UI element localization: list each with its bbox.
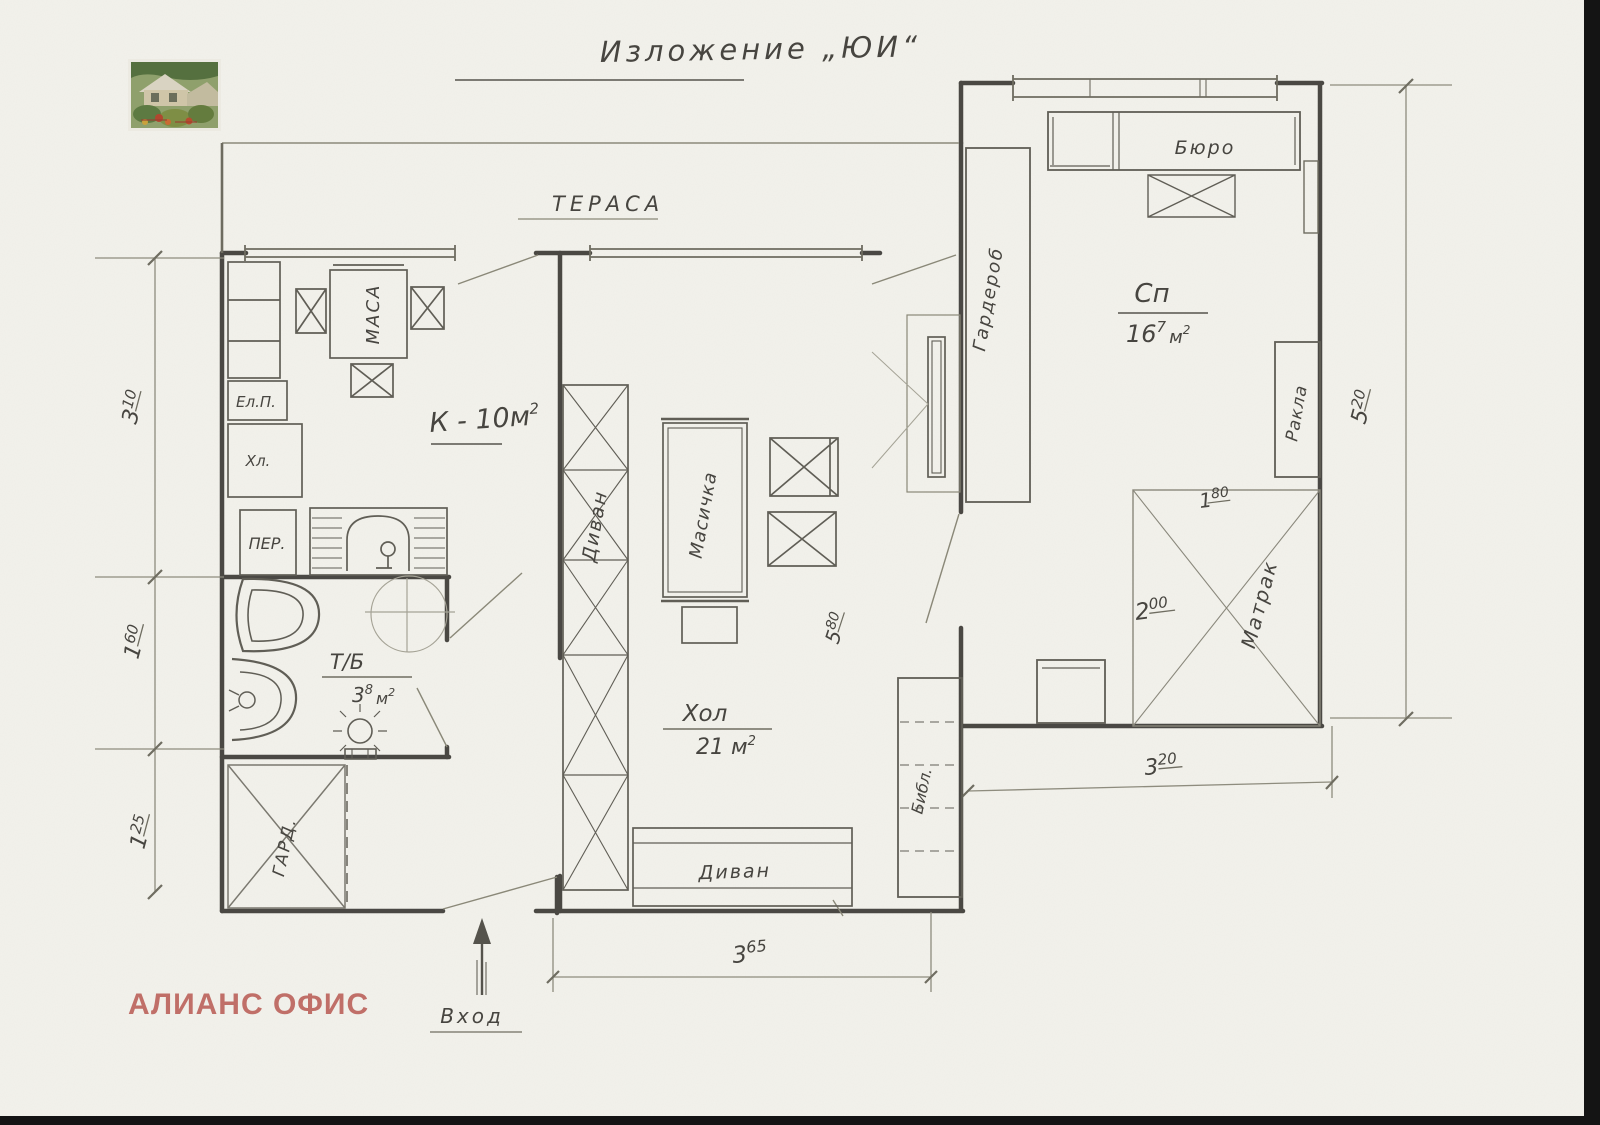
scanned-floor-plan-page: Изложение „ЮИ“ ТЕРАСА МАСА Ел.П. Хл. ПЕР…	[0, 0, 1600, 1125]
terrace-label: ТЕРАСА	[552, 192, 664, 216]
entrance-label: Вход	[440, 1004, 504, 1028]
scan-edge-bottom	[0, 1116, 1600, 1125]
page-title: Изложение „ЮИ“	[600, 29, 922, 69]
sofa-bottom-label: Диван	[697, 860, 771, 885]
agency-watermark: АЛИАНС ОФИС	[128, 988, 369, 1021]
hall-label: Хол	[682, 701, 728, 727]
fridge-label: Хл.	[245, 452, 271, 470]
stove-label: Ел.П.	[236, 393, 276, 411]
bath-label: Т/Б	[330, 650, 364, 674]
photo-house-wall	[144, 90, 188, 106]
floor-plan-sketch: Изложение „ЮИ“ ТЕРАСА МАСА Ел.П. Хл. ПЕР…	[0, 0, 1600, 1125]
desk-label: Бюро	[1175, 137, 1236, 159]
scan-edge-right	[1584, 0, 1600, 1125]
table-label: МАСА	[363, 284, 384, 345]
hall-area-label: 21 м2	[696, 734, 756, 760]
bedroom-label: Сп	[1134, 279, 1169, 309]
agency-photo-logo	[128, 59, 221, 131]
washer-label: ПЕР.	[249, 534, 286, 553]
